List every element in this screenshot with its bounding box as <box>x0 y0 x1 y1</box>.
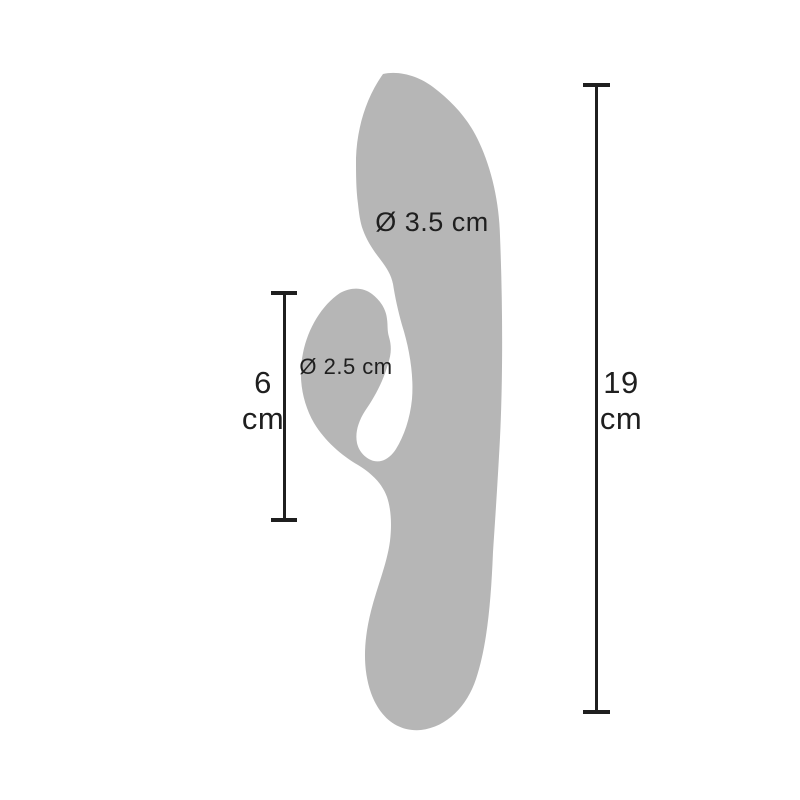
left-measure-label: 6 cm <box>242 365 284 437</box>
left-measure-value: 6 <box>242 365 284 401</box>
shaft-diameter-label: Ø 3.5 cm <box>375 208 489 236</box>
left-measure-unit: cm <box>242 401 284 437</box>
product-dimension-diagram: 6 cm 19 cm Ø 3.5 cm Ø 2.5 cm <box>0 0 800 800</box>
right-dimension-line <box>595 85 598 713</box>
silhouette-path <box>301 73 502 730</box>
right-dimension-cap-bottom <box>583 710 610 714</box>
right-measure-value: 19 <box>600 365 642 401</box>
arm-diameter-label: Ø 2.5 cm <box>299 355 392 378</box>
left-dimension-cap-bottom <box>271 518 297 522</box>
right-measure-label: 19 cm <box>600 365 642 437</box>
right-measure-unit: cm <box>600 401 642 437</box>
product-silhouette <box>0 0 800 800</box>
